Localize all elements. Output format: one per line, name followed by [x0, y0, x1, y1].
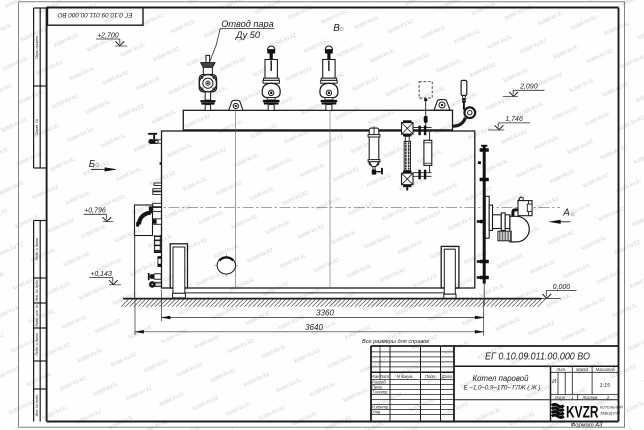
- svg-text:0,000: 0,000: [553, 284, 571, 291]
- svg-text:ЕГ 0.10.09.011.00.000 ВО: ЕГ 0.10.09.011.00.000 ВО: [485, 352, 590, 363]
- svg-text:Формат А3: Формат А3: [571, 423, 603, 429]
- svg-text:+0,143: +0,143: [90, 271, 112, 278]
- svg-text:КОТЕЛЬНЫЙ: КОТЕЛЬНЫЙ: [600, 405, 623, 409]
- svg-text:1: 1: [571, 395, 573, 400]
- svg-text:Масштаб: Масштаб: [596, 367, 616, 372]
- svg-text:Изм.: Изм.: [371, 374, 380, 379]
- svg-text:Дата: Дата: [441, 374, 454, 379]
- svg-text:3360: 3360: [316, 309, 334, 318]
- svg-text:А: А: [562, 207, 570, 218]
- svg-text:Все размеры для справок: Все размеры для справок: [362, 339, 429, 345]
- svg-text:1:15: 1:15: [600, 383, 611, 389]
- svg-text:Перв. примен.: Перв. примен.: [35, 35, 39, 59]
- svg-text:Котел паровой: Котел паровой: [473, 374, 530, 383]
- svg-text:Б: Б: [89, 159, 96, 170]
- svg-text:Лист: Лист: [379, 374, 391, 379]
- svg-text:Подп.: Подп.: [425, 374, 436, 379]
- svg-text:N докум.: N докум.: [397, 374, 414, 379]
- svg-text:Ду 50: Ду 50: [235, 30, 261, 40]
- svg-text:ЕГ 0.10.09.011.00.000 ВО: ЕГ 0.10.09.011.00.000 ВО: [57, 11, 132, 18]
- svg-text:1,746: 1,746: [505, 116, 523, 123]
- svg-text:Справ. №: Справ. №: [35, 119, 39, 135]
- svg-text:Лит.: Лит.: [556, 367, 567, 372]
- svg-text:Взам. инв. №: Взам. инв. №: [35, 304, 39, 326]
- svg-text:Инв. № дубл.: Инв. № дубл.: [35, 279, 39, 301]
- svg-text:В: В: [333, 23, 340, 34]
- svg-text:Утв.: Утв.: [372, 410, 381, 415]
- svg-text:2,090: 2,090: [519, 84, 538, 91]
- svg-text:Подп. и дата: Подп. и дата: [35, 238, 39, 261]
- svg-text:Т.контр.: Т.контр.: [372, 390, 389, 395]
- svg-text:Подп. и дата: Подп. и дата: [35, 333, 39, 356]
- svg-text:Лист: Лист: [554, 395, 566, 400]
- svg-text:KVZR: KVZR: [566, 403, 599, 422]
- svg-text:+2,700: +2,700: [97, 32, 119, 39]
- svg-text:+0,796: +0,796: [84, 208, 106, 215]
- svg-text:3640: 3640: [305, 323, 323, 332]
- svg-text:Отвод пара: Отвод пара: [221, 19, 274, 29]
- svg-text:Листов: Листов: [582, 395, 599, 400]
- svg-text:ЗАВОД РЗР: ЗАВОД РЗР: [600, 412, 621, 416]
- svg-text:Масса: Масса: [576, 367, 589, 372]
- svg-text:Инв. № подл.: Инв. № подл.: [35, 394, 39, 416]
- svg-text:Е –1,0–0,9–170– ГЛЖ ( Ж ): Е –1,0–0,9–170– ГЛЖ ( Ж ): [464, 385, 541, 392]
